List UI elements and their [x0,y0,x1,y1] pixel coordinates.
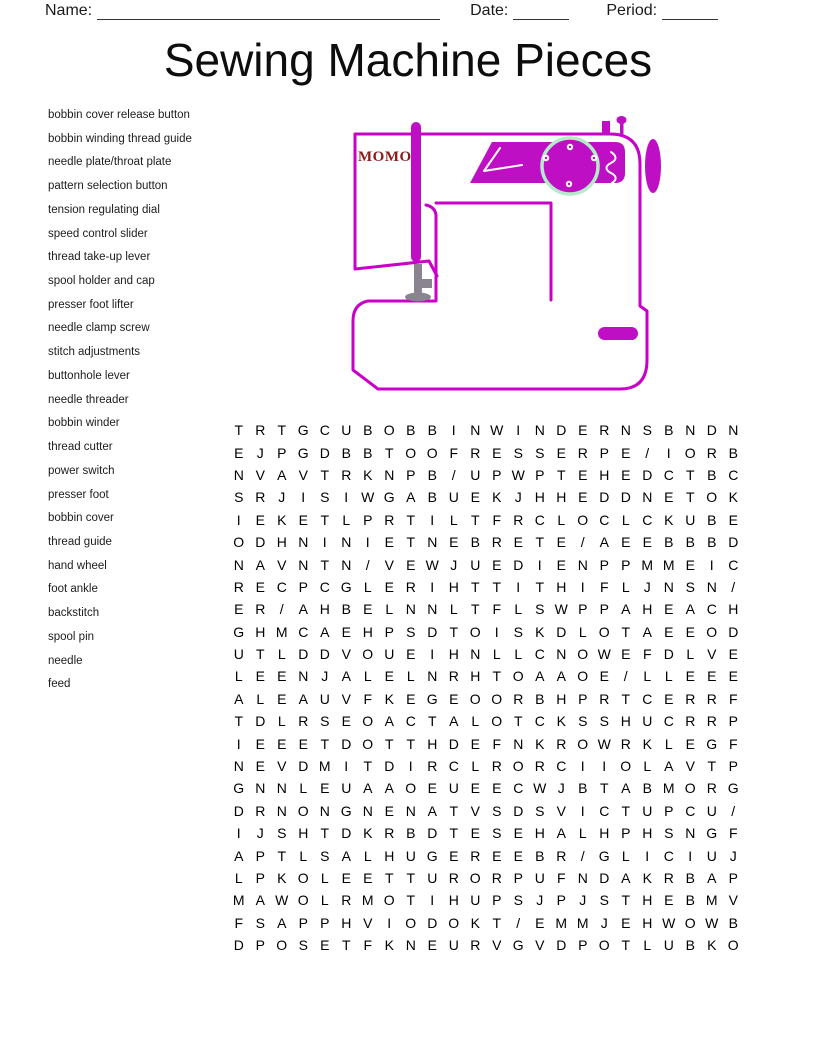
grid-cell: R [465,441,487,463]
grid-cell: E [250,732,272,754]
grid-cell: W [529,777,551,799]
grid-cell: B [637,777,659,799]
grid-cell: O [228,531,250,553]
grid-cell: E [336,867,358,889]
grid-cell: T [250,643,272,665]
grid-cell: E [465,822,487,844]
grid-cell: H [443,643,465,665]
grid-cell: T [486,576,508,598]
grid-cell: A [336,665,358,687]
grid-cell: H [637,822,659,844]
grid-cell: U [314,688,336,710]
grid-cell: L [400,665,422,687]
grid-cell: O [293,800,315,822]
grid-cell: I [228,509,250,531]
grid-cell: / [723,576,745,598]
grid-cell: H [357,621,379,643]
grid-cell: P [250,867,272,889]
grid-cell: J [271,486,293,508]
grid-cell: B [529,844,551,866]
grid-cell: R [615,732,637,754]
grid-cell: M [228,889,250,911]
grid-cell: W [594,732,616,754]
grid-cell: S [314,486,336,508]
grid-cell: O [508,665,530,687]
grid-cell: S [486,800,508,822]
grid-cell: C [529,509,551,531]
word-list-item: presser foot [48,484,192,508]
grid-cell: E [551,553,573,575]
grid-cell: E [615,912,637,934]
grid-cell: B [658,419,680,441]
grid-cell: L [443,509,465,531]
grid-cell: R [508,509,530,531]
grid-cell: T [314,553,336,575]
grid-cell: A [400,486,422,508]
grid-cell: O [422,441,444,463]
grid-cell: S [508,621,530,643]
grid-cell: C [400,710,422,732]
grid-cell: G [293,419,315,441]
grid-cell: A [594,531,616,553]
grid-cell: A [228,688,250,710]
word-list-item: tension regulating dial [48,199,192,223]
grid-cell: O [443,912,465,934]
grid-cell: M [658,777,680,799]
grid-cell: H [379,844,401,866]
word-list-item: spool pin [48,626,192,650]
period-blank-line [662,3,718,20]
grid-cell: J [529,889,551,911]
grid-cell: K [723,486,745,508]
grid-cell: C [658,464,680,486]
grid-cell: F [723,732,745,754]
grid-cell: R [336,889,358,911]
grid-cell: P [314,912,336,934]
grid-cell: N [314,800,336,822]
grid-cell: T [379,441,401,463]
grid-cell: R [400,576,422,598]
grid-cell: L [572,822,594,844]
grid-cell: D [293,755,315,777]
grid-cell: S [228,486,250,508]
grid-cell: P [572,598,594,620]
grid-cell: G [422,844,444,866]
grid-cell: E [551,441,573,463]
grid-cell: S [594,889,616,911]
grid-cell: N [422,531,444,553]
grid-cell: C [529,643,551,665]
grid-cell: E [658,486,680,508]
grid-cell: T [465,509,487,531]
grid-cell: T [400,531,422,553]
grid-cell: B [400,419,422,441]
grid-cell: O [680,777,702,799]
grid-cell: L [465,755,487,777]
grid-cell: N [293,665,315,687]
grid-cell: E [486,441,508,463]
grid-cell: E [658,889,680,911]
grid-cell: B [680,889,702,911]
name-blank-line [97,3,440,20]
grid-cell: / [637,441,659,463]
grid-cell: E [271,665,293,687]
grid-cell: E [443,844,465,866]
grid-cell: R [486,867,508,889]
grid-cell: J [250,822,272,844]
grid-cell: L [508,598,530,620]
grid-cell: V [701,643,723,665]
grid-cell: P [508,867,530,889]
grid-cell: A [615,867,637,889]
grid-cell: F [486,598,508,620]
grid-cell: N [529,419,551,441]
grid-cell: N [465,419,487,441]
grid-cell: E [293,732,315,754]
grid-cell: D [422,822,444,844]
grid-cell: T [379,867,401,889]
word-list-item: needle plate/throat plate [48,151,192,175]
word-list-item: bobbin cover [48,507,192,531]
grid-cell: E [379,576,401,598]
grid-cell: D [658,643,680,665]
grid-cell: K [551,710,573,732]
word-list-item: power switch [48,460,192,484]
grid-cell: M [357,889,379,911]
grid-cell: O [357,710,379,732]
grid-cell: P [486,464,508,486]
grid-cell: N [615,419,637,441]
grid-cell: E [379,800,401,822]
grid-cell: F [228,912,250,934]
grid-cell: M [271,621,293,643]
grid-cell: L [228,867,250,889]
grid-cell: E [379,665,401,687]
grid-cell: E [658,688,680,710]
grid-cell: B [336,441,358,463]
grid-cell: D [228,800,250,822]
grid-cell: B [357,419,379,441]
word-list-item: thread take-up lever [48,246,192,270]
grid-cell: S [250,912,272,934]
grid-cell: H [422,732,444,754]
grid-cell: T [400,889,422,911]
grid-cell: M [658,553,680,575]
grid-cell: M [637,553,659,575]
grid-cell: P [615,822,637,844]
grid-cell: I [336,486,358,508]
grid-cell: V [723,889,745,911]
grid-cell: T [551,464,573,486]
grid-cell: P [594,441,616,463]
grid-cell: L [293,777,315,799]
grid-cell: N [572,553,594,575]
grid-cell: J [314,665,336,687]
grid-cell: N [336,553,358,575]
grid-cell: D [594,486,616,508]
grid-cell: C [314,576,336,598]
grid-cell: K [379,934,401,956]
grid-cell: N [228,755,250,777]
grid-cell: I [572,800,594,822]
word-list: bobbin cover release buttonbobbin windin… [48,104,192,697]
grid-cell: L [572,621,594,643]
grid-cell: P [293,912,315,934]
grid-cell: G [723,777,745,799]
grid-cell: K [701,934,723,956]
grid-cell: L [508,643,530,665]
grid-cell: S [529,441,551,463]
grid-cell: D [314,643,336,665]
grid-cell: I [486,621,508,643]
word-list-item: buttonhole lever [48,365,192,389]
grid-cell: A [701,867,723,889]
grid-cell: B [680,531,702,553]
word-list-item: hand wheel [48,555,192,579]
grid-cell: N [228,553,250,575]
grid-cell: E [508,822,530,844]
grid-cell: E [508,531,530,553]
grid-cell: N [723,419,745,441]
grid-cell: L [357,665,379,687]
grid-cell: H [250,621,272,643]
grid-cell: T [271,844,293,866]
worksheet-header: Name: Date: Period: [45,2,745,20]
grid-cell: S [508,441,530,463]
grid-cell: J [594,912,616,934]
grid-cell: H [594,822,616,844]
grid-cell: V [336,688,358,710]
grid-cell: O [594,621,616,643]
grid-cell: E [615,441,637,463]
grid-cell: L [615,509,637,531]
grid-cell: D [336,732,358,754]
grid-cell: C [701,598,723,620]
grid-cell: W [594,643,616,665]
grid-cell: J [508,486,530,508]
grid-cell: U [637,710,659,732]
grid-cell: O [400,441,422,463]
grid-cell: N [465,643,487,665]
grid-cell: U [680,509,702,531]
grid-cell: E [271,732,293,754]
grid-cell: P [723,710,745,732]
grid-cell: R [250,419,272,441]
word-list-item: bobbin cover release button [48,104,192,128]
grid-cell: W [701,912,723,934]
grid-cell: D [508,800,530,822]
grid-cell: I [314,531,336,553]
grid-cell: B [680,867,702,889]
grid-cell: A [443,710,465,732]
grid-cell: L [486,643,508,665]
bobbin-winder-pin-icon [617,116,627,135]
word-list-item: needle [48,650,192,674]
grid-cell: E [615,643,637,665]
grid-cell: A [551,822,573,844]
grid-cell: T [228,710,250,732]
grid-cell: N [271,777,293,799]
grid-cell: T [357,755,379,777]
grid-cell: W [658,912,680,934]
grid-cell: U [336,419,358,441]
grid-cell: / [271,598,293,620]
grid-cell: R [250,800,272,822]
grid-cell: B [723,441,745,463]
grid-cell: N [336,531,358,553]
needle-bar-icon [411,122,421,262]
grid-cell: I [422,576,444,598]
grid-cell: R [680,688,702,710]
grid-cell: E [400,553,422,575]
grid-cell: L [271,710,293,732]
grid-cell: R [701,777,723,799]
grid-cell: / [357,553,379,575]
grid-cell: M [314,755,336,777]
grid-cell: N [400,934,422,956]
grid-cell: E [723,665,745,687]
grid-cell: L [658,732,680,754]
grid-cell: T [443,822,465,844]
grid-cell: P [529,464,551,486]
grid-cell: N [637,486,659,508]
grid-cell: E [271,688,293,710]
grid-cell: E [529,912,551,934]
grid-cell: C [637,509,659,531]
grid-cell: G [293,441,315,463]
grid-cell: O [465,867,487,889]
grid-cell: P [594,598,616,620]
grid-cell: T [314,509,336,531]
word-list-item: bobbin winder [48,412,192,436]
grid-cell: I [572,576,594,598]
grid-cell: G [594,844,616,866]
grid-cell: G [422,688,444,710]
grid-cell: D [250,531,272,553]
period-label: Period: [606,2,657,20]
grid-cell: R [486,755,508,777]
grid-cell: I [400,755,422,777]
grid-cell: E [486,553,508,575]
grid-cell: V [486,934,508,956]
grid-cell: L [680,643,702,665]
grid-cell: U [379,643,401,665]
grid-cell: D [379,755,401,777]
grid-cell: K [271,509,293,531]
grid-cell: E [658,621,680,643]
grid-cell: R [250,486,272,508]
grid-cell: L [615,844,637,866]
grid-cell: B [701,531,723,553]
grid-cell: D [723,621,745,643]
grid-cell: K [658,509,680,531]
grid-cell: E [680,665,702,687]
grid-cell: H [293,822,315,844]
grid-cell: A [658,755,680,777]
grid-cell: I [422,889,444,911]
grid-cell: N [422,598,444,620]
grid-cell: K [529,732,551,754]
grid-cell: S [508,889,530,911]
word-list-item: feed [48,673,192,697]
grid-cell: E [400,688,422,710]
grid-cell: P [271,441,293,463]
grid-cell: V [336,643,358,665]
grid-cell: F [486,732,508,754]
grid-cell: V [271,755,293,777]
grid-cell: T [615,621,637,643]
grid-cell: A [250,553,272,575]
grid-cell: / [723,800,745,822]
grid-cell: N [293,531,315,553]
grid-cell: A [293,688,315,710]
grid-cell: D [508,553,530,575]
grid-cell: S [271,822,293,844]
grid-cell: R [594,688,616,710]
grid-cell: C [658,710,680,732]
grid-cell: T [594,777,616,799]
grid-cell: S [637,419,659,441]
grid-cell: W [551,598,573,620]
grid-cell: F [723,822,745,844]
grid-cell: S [572,710,594,732]
grid-cell: U [701,844,723,866]
grid-cell: A [615,777,637,799]
grid-cell: M [551,912,573,934]
grid-cell: L [357,576,379,598]
grid-cell: L [443,598,465,620]
grid-cell: H [551,486,573,508]
grid-cell: R [379,822,401,844]
grid-cell: E [486,844,508,866]
grid-cell: K [271,867,293,889]
grid-cell: S [594,710,616,732]
grid-cell: T [443,621,465,643]
grid-cell: A [680,598,702,620]
grid-cell: C [271,576,293,598]
grid-cell: D [443,732,465,754]
grid-cell: B [422,486,444,508]
grid-cell: / [443,464,465,486]
grid-cell: D [551,419,573,441]
grid-cell: H [551,576,573,598]
grid-cell: D [314,441,336,463]
grid-cell: W [357,486,379,508]
grid-cell: G [228,777,250,799]
grid-cell: T [314,732,336,754]
grid-cell: W [271,889,293,911]
grid-cell: E [615,531,637,553]
grid-cell: T [314,464,336,486]
grid-cell: D [336,822,358,844]
grid-cell: K [637,867,659,889]
grid-cell: E [465,777,487,799]
grid-cell: J [723,844,745,866]
grid-cell: S [486,822,508,844]
grid-cell: D [250,710,272,732]
grid-cell: I [228,732,250,754]
grid-cell: R [701,710,723,732]
grid-cell: I [293,486,315,508]
grid-cell: N [293,553,315,575]
grid-cell: H [551,688,573,710]
grid-cell: O [680,441,702,463]
grid-cell: O [615,755,637,777]
grid-cell: I [572,755,594,777]
grid-cell: R [422,755,444,777]
grid-cell: T [400,509,422,531]
grid-cell: C [723,553,745,575]
